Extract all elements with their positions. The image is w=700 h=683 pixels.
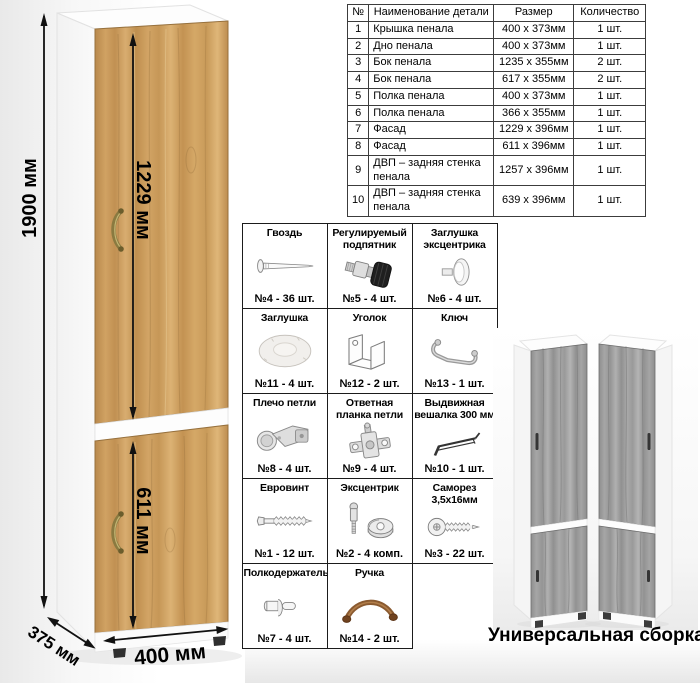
part-row: 1Крышка пенала400 х 373мм1 шт. (348, 21, 646, 38)
nail-icon (243, 239, 327, 293)
part-size: 400 х 373мм (494, 88, 574, 105)
hw-title: Евровинт (243, 479, 327, 494)
variant-cabinet-right (599, 335, 672, 628)
col-header-num: № (348, 5, 369, 22)
cabinet-foot-left (113, 648, 126, 658)
part-row: 8Фасад611 х 396мм1 шт. (348, 139, 646, 156)
hw-qty: №6 - 4 шт. (413, 293, 497, 308)
lower-door-dimension-label: 611 мм (132, 487, 154, 554)
hw-qty: №5 - 4 шт. (328, 293, 412, 308)
part-num: 3 (348, 55, 369, 72)
part-size: 400 х 373мм (494, 21, 574, 38)
part-row: 9ДВП – задняя стенка пенала1257 х 396мм1… (348, 155, 646, 186)
part-qty: 1 шт. (574, 139, 646, 156)
part-name: ДВП – задняя стенка пенала (369, 186, 494, 217)
part-num: 4 (348, 72, 369, 89)
part-qty: 1 шт. (574, 38, 646, 55)
corner-bracket-icon (328, 324, 412, 378)
hw-cell-hinge-plate: Ответная планка петли №9 - 4 шт. (327, 393, 413, 479)
handle-icon (328, 579, 412, 633)
part-qty: 1 шт. (574, 88, 646, 105)
cabinet-side-panel (57, 13, 95, 650)
cover-cap-icon (243, 324, 327, 378)
hw-cell-key: Ключ №13 - 1 шт. (412, 308, 498, 394)
adjustable-foot-icon (328, 251, 412, 293)
part-num: 8 (348, 139, 369, 156)
variant-right-upper-door (599, 344, 655, 527)
variant-right-lower-door (599, 526, 655, 618)
part-size: 400 х 373мм (494, 38, 574, 55)
hw-qty: №1 - 12 шт. (243, 548, 327, 563)
part-name: Полка пенала (369, 105, 494, 122)
part-name: ДВП – задняя стенка пенала (369, 155, 494, 186)
part-qty: 2 шт. (574, 55, 646, 72)
hw-title: Плечо петли (243, 394, 327, 409)
self-tapping-screw-icon (413, 506, 497, 548)
hw-qty: №8 - 4 шт. (243, 463, 327, 478)
hw-cell-pullout-hanger: Выдвижная вешалка 300 мм №10 - 1 шт. (412, 393, 498, 479)
pullout-hanger-icon (413, 421, 497, 463)
part-qty: 1 шт. (574, 122, 646, 139)
col-header-size: Размер (494, 5, 574, 22)
variant-left-lower-door (531, 526, 587, 618)
hw-title: Уголок (328, 309, 412, 324)
hw-qty: №12 - 2 шт. (328, 378, 412, 393)
part-row: 4Бок пенала617 х 355мм2 шт. (348, 72, 646, 89)
hw-qty: №2 - 4 комп. (328, 548, 412, 563)
confirmat-screw-icon (243, 494, 327, 548)
part-size: 617 х 355мм (494, 72, 574, 89)
assembly-sheet: 1900 мм 1229 мм 611 мм 375 мм 400 мм (0, 0, 700, 683)
part-row: 3Бок пенала1235 х 355мм2 шт. (348, 55, 646, 72)
part-num: 9 (348, 155, 369, 186)
part-name: Фасад (369, 122, 494, 139)
key-icon (413, 324, 497, 378)
hw-qty: №3 - 22 шт. (413, 548, 497, 563)
part-name: Крышка пенала (369, 21, 494, 38)
hw-title: Регулируемый подпятник (328, 224, 412, 251)
part-row: 7Фасад1229 х 396мм1 шт. (348, 122, 646, 139)
part-row: 10ДВП – задняя стенка пенала639 х 396мм1… (348, 186, 646, 217)
hw-cell-handle: Ручка №14 - 2 шт. (327, 563, 413, 649)
hw-qty: №14 - 2 шт. (328, 633, 412, 648)
hw-qty: №4 - 36 шт. (243, 293, 327, 308)
part-size: 366 х 355мм (494, 105, 574, 122)
hw-cell-confirmat-screw: Евровинт №1 - 12 шт. (242, 478, 328, 564)
hw-title: Полкодержатель (243, 564, 327, 579)
part-size: 1229 х 396мм (494, 122, 574, 139)
upper-door-dimension-label: 1229 мм (132, 160, 154, 240)
hw-qty: №13 - 1 шт. (413, 378, 497, 393)
cabinet-diagram: 1900 мм 1229 мм 611 мм 375 мм 400 мм (0, 0, 245, 683)
hw-title: Эксцентрик (328, 479, 412, 494)
height-dimension-label: 1900 мм (19, 158, 41, 238)
variant-left-lower-handle (536, 570, 539, 582)
hw-qty: №10 - 1 шт. (413, 463, 497, 478)
hw-title: Гвоздь (243, 224, 327, 239)
part-size: 639 х 396мм (494, 186, 574, 217)
part-name: Дно пенала (369, 38, 494, 55)
cam-cover-icon (413, 251, 497, 293)
part-num: 6 (348, 105, 369, 122)
part-num: 10 (348, 186, 369, 217)
hw-cell-hinge-arm: Плечо петли №8 - 4 шт. (242, 393, 328, 479)
parts-table-header-row: № Наименование детали Размер Количество (348, 5, 646, 22)
part-qty: 1 шт. (574, 105, 646, 122)
part-row: 5Полка пенала400 х 373мм1 шт. (348, 88, 646, 105)
shelf-pin-icon (243, 579, 327, 633)
variant-cabinet-left (514, 335, 587, 628)
hw-cell-corner-bracket: Уголок №12 - 2 шт. (327, 308, 413, 394)
variant-right-upper-handle (648, 433, 651, 450)
cam-lock-icon (328, 494, 412, 548)
hw-qty: №9 - 4 шт. (328, 463, 412, 478)
hw-title: Ответная планка петли (328, 394, 412, 421)
universal-assembly-caption: Универсальная сборка. (488, 625, 700, 647)
hw-cell-nail: Гвоздь №4 - 36 шт. (242, 223, 328, 309)
part-size: 611 х 396мм (494, 139, 574, 156)
variant-right-lower-handle (647, 570, 650, 582)
hw-cell-cam-cover: Заглушка эксцентрика №6 - 4 шт. (412, 223, 498, 309)
part-num: 5 (348, 88, 369, 105)
part-row: 2Дно пенала400 х 373мм1 шт. (348, 38, 646, 55)
part-qty: 1 шт. (574, 186, 646, 217)
part-name: Фасад (369, 139, 494, 156)
hw-cell-cam-lock: Эксцентрик №2 - 4 комп. (327, 478, 413, 564)
hw-title: Заглушка (243, 309, 327, 324)
variant-left-upper-door (531, 344, 587, 527)
hw-qty: №11 - 4 шт. (243, 378, 327, 393)
part-name: Бок пенала (369, 55, 494, 72)
part-size: 1257 х 396мм (494, 155, 574, 186)
hw-qty: №7 - 4 шт. (243, 633, 327, 648)
col-header-name: Наименование детали (369, 5, 494, 22)
hw-title: Заглушка эксцентрика (413, 224, 497, 251)
part-row: 6Полка пенала366 х 355мм1 шт. (348, 105, 646, 122)
part-name: Бок пенала (369, 72, 494, 89)
part-qty: 1 шт. (574, 155, 646, 186)
hw-title: Ручка (328, 564, 412, 579)
hw-cell-adjustable-foot: Регулируемый подпятник №5 - 4 шт. (327, 223, 413, 309)
parts-table: № Наименование детали Размер Количество … (347, 4, 646, 217)
hw-title: Выдвижная вешалка 300 мм (413, 394, 497, 421)
variant-left-upper-handle (536, 433, 539, 450)
part-num: 7 (348, 122, 369, 139)
hw-cell-shelf-pin: Полкодержатель №7 - 4 шт. (242, 563, 328, 649)
part-name: Полка пенала (369, 88, 494, 105)
hw-title: Ключ (413, 309, 497, 324)
part-size: 1235 х 355мм (494, 55, 574, 72)
hardware-grid: Гвоздь №4 - 36 шт. Регулируемый подпятни… (242, 223, 497, 648)
hinge-plate-icon (328, 421, 412, 463)
part-qty: 1 шт. (574, 21, 646, 38)
hw-title: Саморез 3,5х16мм (413, 479, 497, 506)
hinge-arm-icon (243, 409, 327, 463)
part-qty: 2 шт. (574, 72, 646, 89)
hw-cell-cover-cap: Заглушка №11 - 4 шт. (242, 308, 328, 394)
hw-cell-self-tapping-screw: Саморез 3,5х16мм №3 - 22 шт. (412, 478, 498, 564)
cabinet-foot-right (213, 636, 226, 646)
col-header-qty: Количество (574, 5, 646, 22)
assembly-variants-diagram (493, 328, 698, 630)
part-num: 2 (348, 38, 369, 55)
part-num: 1 (348, 21, 369, 38)
